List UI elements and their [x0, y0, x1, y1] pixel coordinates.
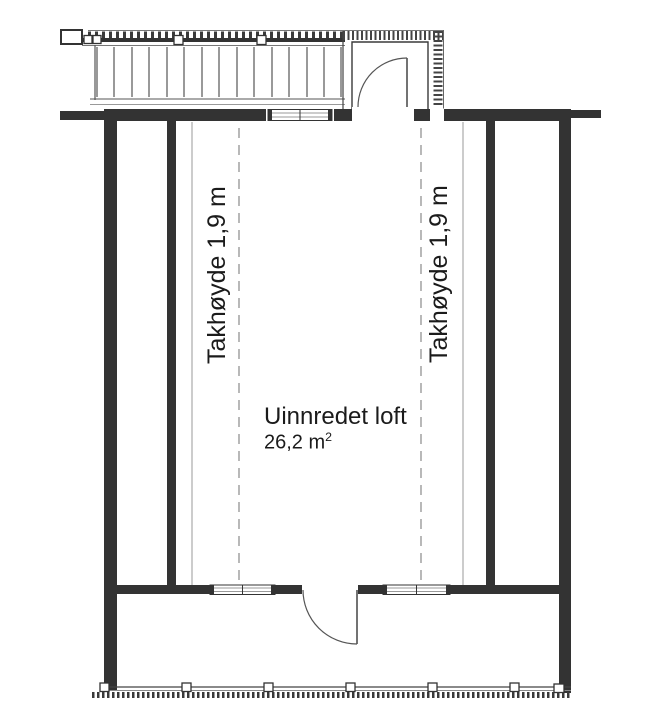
balcony-railing	[61, 30, 345, 105]
vestibule-wall-notch	[430, 109, 444, 123]
room-area-label: 26,2 m2	[264, 430, 332, 455]
bottom-door	[303, 590, 357, 644]
vestibule-door-arc	[358, 58, 407, 107]
entry-vestibule	[343, 30, 444, 109]
area-superscript: 2	[325, 430, 332, 444]
balcony-end-post	[61, 30, 82, 44]
right-exterior-wall	[559, 121, 571, 693]
roof-overhang-dash-top	[88, 31, 444, 36]
floor-plan: Takhøyde 1,9 m Takhøyde 1,9 m Uinnredet …	[0, 0, 656, 720]
window-top	[266, 106, 334, 124]
left-exterior-wall	[104, 121, 117, 690]
plan-linework	[0, 0, 656, 720]
top-wall-left-overhang	[60, 111, 104, 120]
window-bottom-left	[210, 583, 275, 596]
bottom-door-opening	[302, 583, 358, 596]
balcony-balusters	[95, 45, 341, 100]
ceiling-height-label-right: Takhøyde 1,9 m	[425, 185, 454, 363]
room-name-label: Uinnredet loft	[264, 403, 407, 431]
walls	[60, 109, 601, 693]
ceiling-height-label-left: Takhøyde 1,9 m	[203, 186, 232, 364]
top-wall-right-overhang	[571, 110, 601, 118]
top-door-opening	[352, 107, 414, 123]
top-exterior-wall	[104, 109, 571, 121]
window-bottom-right	[383, 583, 450, 596]
bottom-door-arc	[303, 590, 357, 644]
left-interior-wall	[167, 121, 176, 585]
terrace-railing	[92, 683, 571, 695]
right-interior-wall	[486, 121, 495, 585]
terrace-railing-posts	[100, 683, 564, 693]
